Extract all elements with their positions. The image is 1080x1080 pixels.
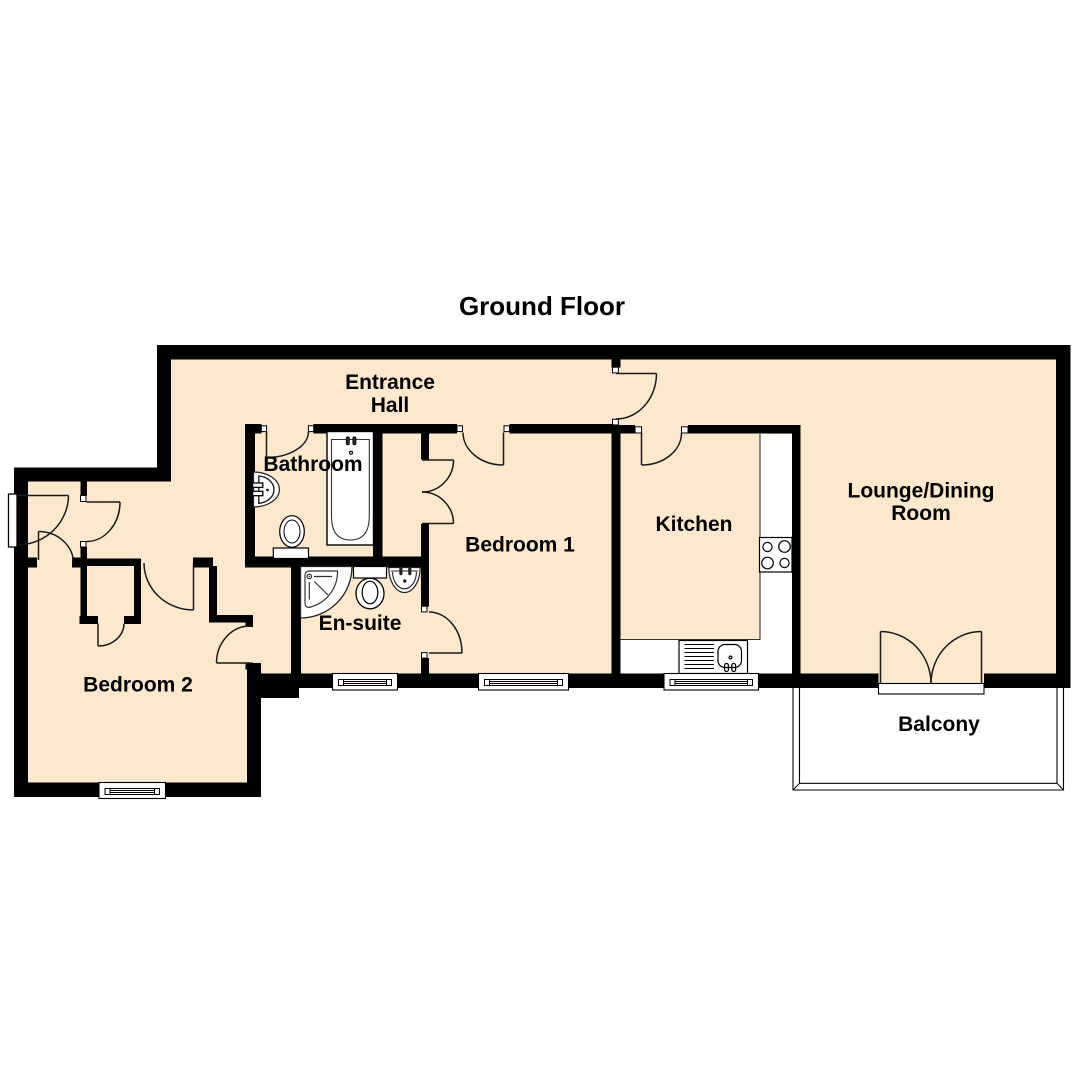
svg-text:Kitchen: Kitchen — [655, 513, 732, 536]
svg-text:En-suite: En-suite — [319, 612, 402, 635]
svg-text:Hall: Hall — [371, 394, 410, 417]
svg-text:Room: Room — [891, 502, 951, 525]
svg-text:Entrance: Entrance — [345, 371, 435, 394]
svg-text:Balcony: Balcony — [898, 713, 980, 736]
svg-text:Bedroom 1: Bedroom 1 — [465, 534, 575, 557]
svg-text:Ground Floor: Ground Floor — [459, 291, 625, 321]
svg-text:Lounge/Dining: Lounge/Dining — [848, 480, 995, 503]
svg-text:Bathroom: Bathroom — [263, 453, 362, 476]
svg-text:Bedroom 2: Bedroom 2 — [83, 674, 193, 697]
